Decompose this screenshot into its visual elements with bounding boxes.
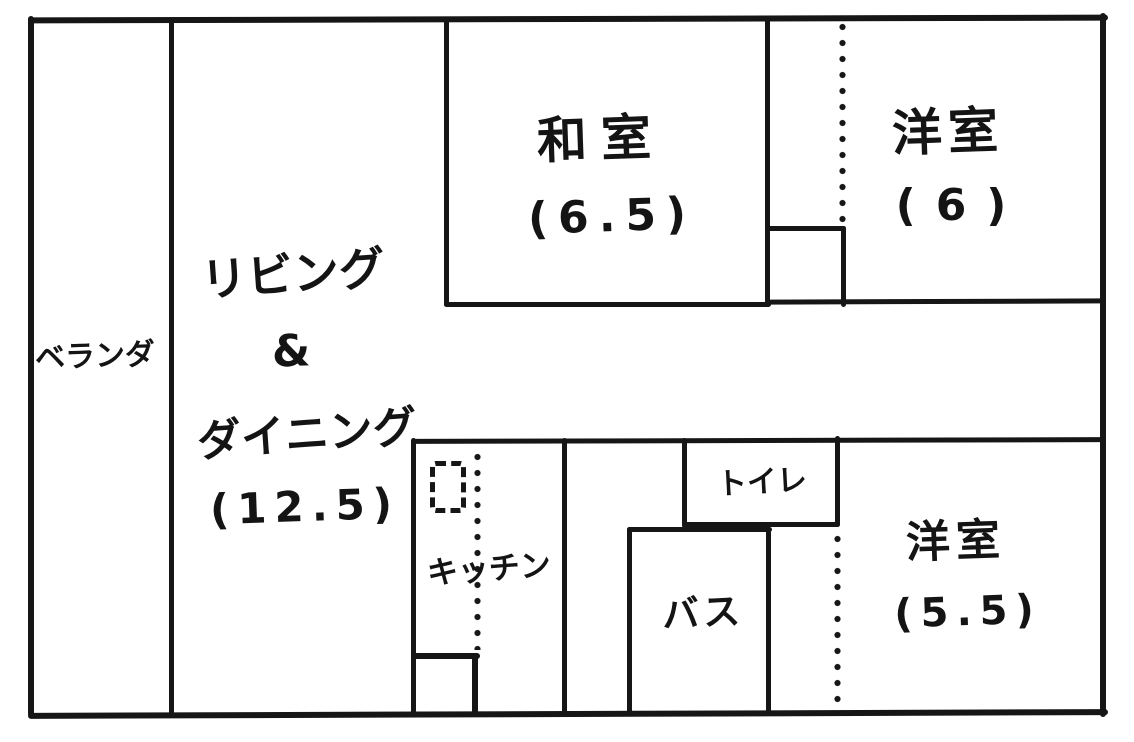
outer-wall-left — [28, 16, 34, 717]
wall-kitchen-left — [411, 438, 416, 716]
wall-bath-right — [766, 530, 771, 716]
dotted-boundary-youshitsu-bottom — [834, 534, 841, 706]
wall-kitchen-right — [562, 438, 567, 716]
wall-washitsu-left — [444, 20, 449, 307]
room-label-bath: バス — [661, 592, 745, 633]
room-label-veranda: ベランダ — [35, 340, 156, 374]
wall-bath-left — [627, 527, 632, 716]
room-label-ampersand: & — [271, 329, 311, 374]
floor-plan-canvas: ベランダ リビング & ダイニング (12.5) 和室 (6.5) 洋室 (6)… — [0, 0, 1134, 742]
wall-top-rooms-divider — [765, 17, 770, 306]
wall-youshitsu-top-bottom — [765, 298, 1106, 304]
room-size-living-dining: (12.5) — [209, 483, 400, 532]
wall-closet-right — [841, 226, 846, 307]
room-label-toilet: トイレ — [716, 466, 807, 501]
wall-veranda-divider — [169, 19, 174, 715]
room-size-washitsu: (6.5) — [527, 192, 697, 242]
wall-toilet-left — [682, 438, 687, 528]
room-label-youshitsu-top: 洋室 — [891, 105, 1005, 159]
wall-kitchen-counter-top — [411, 653, 480, 659]
wall-closet-top — [765, 226, 846, 231]
room-label-kitchen: キッチン — [426, 550, 552, 590]
kitchen-stove-icon — [430, 461, 466, 513]
room-label-living: リビング — [200, 245, 387, 304]
dotted-boundary-kitchen — [474, 452, 481, 650]
wall-bath-top — [627, 527, 772, 532]
wall-washitsu-bottom — [444, 302, 771, 307]
room-label-youshitsu-bottom: 洋室 — [905, 518, 1006, 565]
wall-kitchen-counter-right — [472, 653, 478, 716]
wall-toilet-right — [835, 436, 840, 527]
outer-wall-right — [1100, 13, 1106, 717]
room-size-youshitsu-top: (6) — [896, 184, 1027, 228]
room-region-youshitsu-bottom — [841, 443, 1100, 711]
room-label-washitsu: 和室 — [536, 112, 666, 166]
dotted-boundary-closet — [839, 22, 846, 224]
room-size-youshitsu-bottom: (5.5) — [894, 589, 1043, 634]
